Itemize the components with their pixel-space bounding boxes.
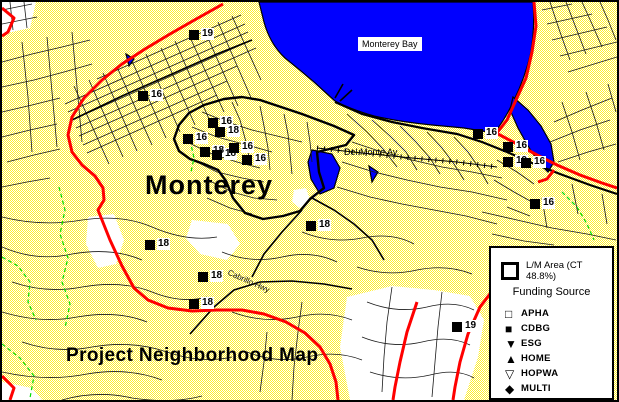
legend-item-label: MULTI [521,383,551,394]
marker-label: 16 [195,132,208,144]
legend-item-apha: □APHA [505,306,612,321]
legend-item-home: ▲HOME [505,351,612,366]
marker-label: 16 [515,140,528,152]
marker-label: 16 [533,156,546,168]
filled-square-icon [521,158,531,168]
legend-item-label: CDBG [521,323,550,334]
marker-label: 16 [485,127,498,139]
filled-square-icon [138,91,148,101]
marker-label: 18 [210,270,223,282]
filled-square-icon [212,150,222,160]
filled-square-icon [503,157,513,167]
map-stage: Monterey Bay Monterey Del Monte Av. Cabr… [0,0,619,402]
legend-item-hopwa: ▽HOPWA [505,366,612,381]
legend-item-pha: △PHA [505,396,612,402]
filled-square-icon [473,129,483,139]
marker-label: 16 [150,89,163,101]
filled-diamond-icon: ◆ [505,382,521,396]
bay-label: Monterey Bay [358,37,422,51]
legend: L/M Area (CT 48.8%) Funding Source □APHA… [489,246,614,400]
filled-square-icon [200,147,210,157]
street-label-del-monte: Del Monte Av. [344,147,399,157]
open-square-icon: □ [505,307,521,321]
marker-label: 19 [201,28,214,40]
city-label: Monterey [145,170,273,201]
filled-triangle-up-icon: ▲ [505,352,521,366]
marker-label: 18 [227,125,240,137]
marker-label: 18 [318,219,331,231]
lm-area-row: L/M Area (CT 48.8%) [501,260,612,282]
marker-label: 16 [241,141,254,153]
filled-square-icon [530,199,540,209]
funding-source-title: Funding Source [491,286,612,298]
filled-square-icon [306,221,316,231]
legend-item-multi: ◆MULTI [505,381,612,396]
lm-area-label: L/M Area (CT 48.8%) [526,260,612,282]
lm-area-symbol-icon [501,262,519,280]
filled-square-icon [145,240,155,250]
open-triangle-up-icon: △ [505,397,521,402]
filled-square-icon [242,155,252,165]
legend-item-label: ESG [521,338,542,349]
filled-square-icon: ■ [505,322,521,336]
legend-item-label: APHA [521,308,549,319]
filled-triangle-down-icon: ▼ [505,337,521,351]
legend-item-label: PHA [521,398,542,402]
open-triangle-down-icon: ▽ [505,367,521,381]
legend-item-cdbg: ■CDBG [505,321,612,336]
legend-item-esg: ▼ESG [505,336,612,351]
filled-square-icon [198,272,208,282]
filled-square-icon [229,143,239,153]
filled-square-icon [183,134,193,144]
legend-item-label: HOPWA [521,368,558,379]
filled-square-icon [503,142,513,152]
funding-source-items: □APHA■CDBG▼ESG▲HOME▽HOPWA◆MULTI△PHA [491,306,612,402]
marker-label: 18 [157,238,170,250]
marker-label: 16 [542,197,555,209]
filled-square-icon [452,322,462,332]
filled-square-icon [189,30,199,40]
filled-square-icon [215,127,225,137]
marker-label: 19 [464,320,477,332]
map-title: Project Neighborhood Map [66,345,318,367]
legend-item-label: HOME [521,353,551,364]
marker-label: 18 [201,297,214,309]
marker-label: 16 [254,153,267,165]
filled-square-icon [189,299,199,309]
